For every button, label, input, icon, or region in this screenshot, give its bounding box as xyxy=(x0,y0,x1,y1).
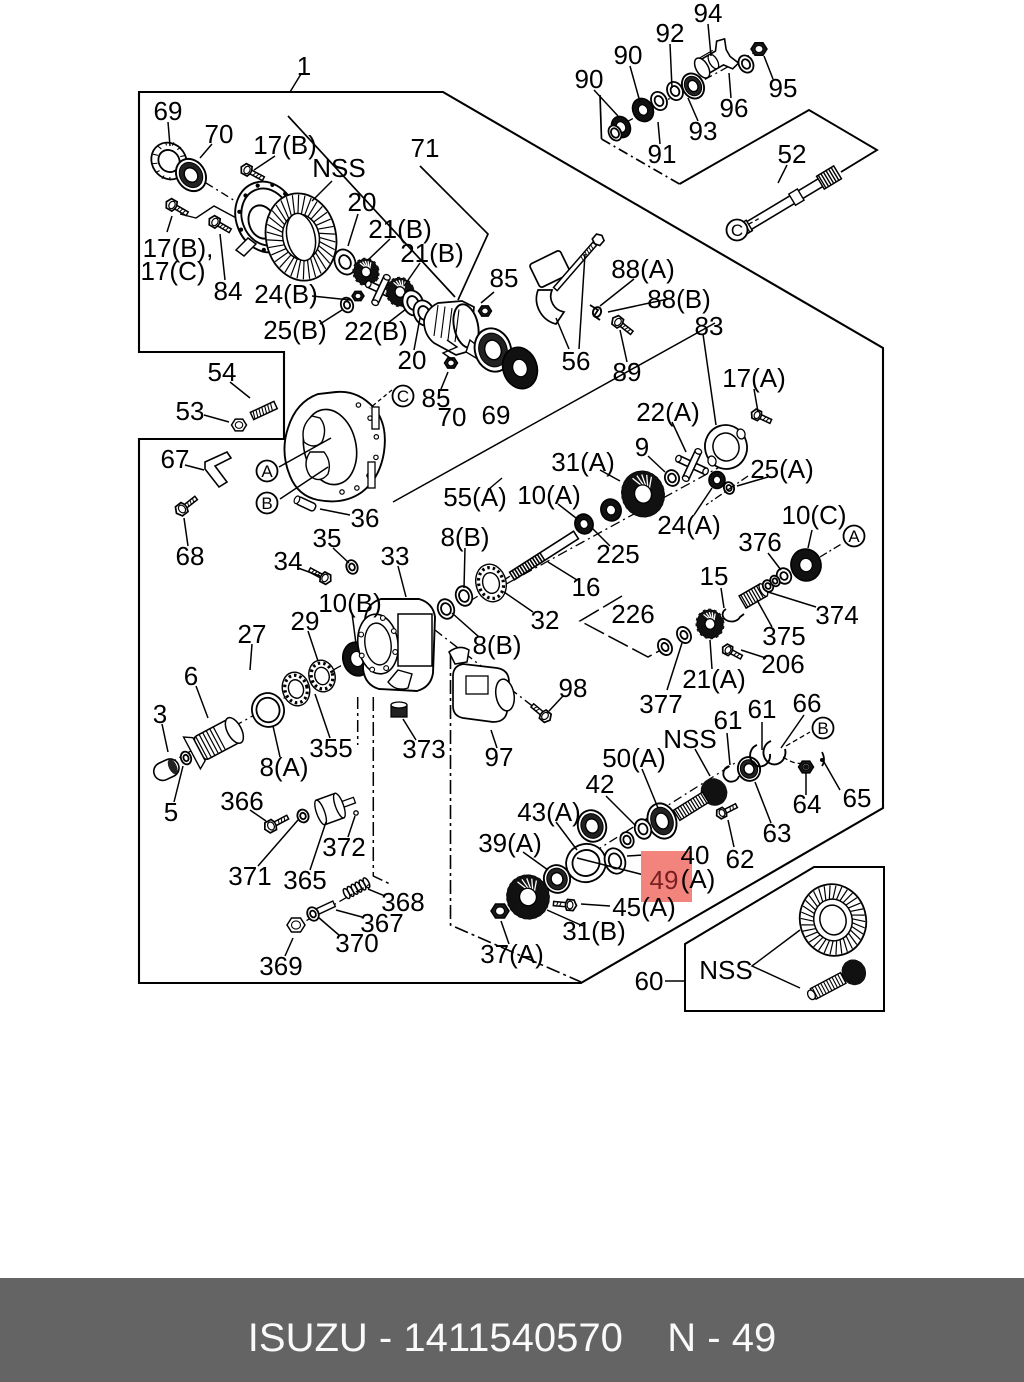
svg-text:NSS: NSS xyxy=(699,955,752,985)
svg-text:22(B): 22(B) xyxy=(344,316,408,346)
svg-text:226: 226 xyxy=(611,599,654,629)
svg-text:15: 15 xyxy=(700,561,729,591)
svg-text:56: 56 xyxy=(562,346,591,376)
svg-text:49: 49 xyxy=(650,865,679,895)
svg-text:17(A): 17(A) xyxy=(722,363,786,393)
svg-text:10(A): 10(A) xyxy=(517,480,581,510)
svg-text:69: 69 xyxy=(482,400,511,430)
svg-text:96: 96 xyxy=(720,93,749,123)
svg-text:366: 366 xyxy=(220,786,263,816)
svg-text:91: 91 xyxy=(648,139,677,169)
svg-text:25(B): 25(B) xyxy=(263,315,327,345)
svg-text:206: 206 xyxy=(761,649,804,679)
svg-text:52: 52 xyxy=(778,139,807,169)
svg-text:66: 66 xyxy=(793,688,822,718)
svg-text:B: B xyxy=(261,494,272,513)
svg-text:97: 97 xyxy=(485,742,514,772)
svg-text:61: 61 xyxy=(748,694,777,724)
svg-text:372: 372 xyxy=(322,832,365,862)
svg-text:8(B): 8(B) xyxy=(440,522,489,552)
svg-text:31(A): 31(A) xyxy=(551,447,615,477)
svg-text:NSS: NSS xyxy=(663,724,716,754)
svg-text:C: C xyxy=(731,221,743,240)
svg-text:94: 94 xyxy=(694,0,723,28)
svg-text:(A): (A) xyxy=(681,864,716,894)
svg-text:355: 355 xyxy=(309,733,352,763)
svg-text:35: 35 xyxy=(313,523,342,553)
svg-text:95: 95 xyxy=(769,73,798,103)
svg-text:71: 71 xyxy=(411,133,440,163)
svg-text:3: 3 xyxy=(153,699,167,729)
svg-text:370: 370 xyxy=(335,928,378,958)
svg-text:369: 369 xyxy=(259,951,302,981)
svg-text:85: 85 xyxy=(490,263,519,293)
svg-text:32: 32 xyxy=(531,605,560,635)
svg-text:54: 54 xyxy=(208,357,237,387)
svg-text:365: 365 xyxy=(283,865,326,895)
svg-text:8(B): 8(B) xyxy=(472,630,521,660)
svg-text:6: 6 xyxy=(184,661,198,691)
svg-text:60: 60 xyxy=(635,966,664,996)
svg-text:37(A): 37(A) xyxy=(480,939,544,969)
svg-text:ISUZU - 1411540570 N - 49: ISUZU - 1411540570 N - 49 xyxy=(248,1316,776,1360)
svg-text:A: A xyxy=(848,527,860,546)
svg-text:42: 42 xyxy=(586,769,615,799)
svg-text:1: 1 xyxy=(297,51,311,81)
svg-text:8(A): 8(A) xyxy=(259,752,308,782)
svg-text:92: 92 xyxy=(656,18,685,48)
svg-text:55(A): 55(A) xyxy=(443,482,507,512)
svg-text:10(C): 10(C) xyxy=(781,500,846,530)
svg-text:84: 84 xyxy=(214,276,243,306)
svg-text:89: 89 xyxy=(613,357,642,387)
svg-text:90: 90 xyxy=(575,64,604,94)
svg-text:70: 70 xyxy=(438,402,467,432)
svg-text:70: 70 xyxy=(205,119,234,149)
svg-text:98: 98 xyxy=(559,673,588,703)
svg-text:225: 225 xyxy=(596,539,639,569)
svg-text:63: 63 xyxy=(763,818,792,848)
svg-text:377: 377 xyxy=(639,689,682,719)
svg-text:376: 376 xyxy=(738,527,781,557)
svg-text:68: 68 xyxy=(176,541,205,571)
svg-text:83: 83 xyxy=(695,311,724,341)
svg-text:A: A xyxy=(261,462,273,481)
svg-text:B: B xyxy=(817,719,828,738)
svg-text:9: 9 xyxy=(635,432,649,462)
svg-text:53: 53 xyxy=(176,396,205,426)
svg-text:61: 61 xyxy=(714,705,743,735)
svg-text:10(B): 10(B) xyxy=(318,588,382,618)
svg-text:22(A): 22(A) xyxy=(636,397,700,427)
svg-text:21(A): 21(A) xyxy=(682,664,746,694)
svg-text:43(A): 43(A) xyxy=(517,797,581,827)
svg-text:65: 65 xyxy=(843,783,872,813)
svg-text:25(A): 25(A) xyxy=(750,454,814,484)
svg-text:20: 20 xyxy=(348,187,377,217)
svg-text:34: 34 xyxy=(274,546,303,576)
svg-text:20: 20 xyxy=(398,345,427,375)
svg-text:88(A): 88(A) xyxy=(611,254,675,284)
svg-text:27: 27 xyxy=(238,619,267,649)
svg-text:39(A): 39(A) xyxy=(478,828,542,858)
svg-text:375: 375 xyxy=(762,621,805,651)
svg-text:373: 373 xyxy=(402,734,445,764)
svg-text:NSS: NSS xyxy=(312,153,365,183)
svg-text:371: 371 xyxy=(228,861,271,891)
svg-text:17(C): 17(C) xyxy=(140,256,205,286)
svg-text:24(A): 24(A) xyxy=(657,510,721,540)
svg-text:64: 64 xyxy=(793,789,822,819)
svg-text:21(B): 21(B) xyxy=(400,238,464,268)
svg-text:17(B): 17(B) xyxy=(253,130,317,160)
svg-text:62: 62 xyxy=(726,844,755,874)
svg-text:5: 5 xyxy=(164,797,178,827)
svg-text:69: 69 xyxy=(154,96,183,126)
svg-text:31(B): 31(B) xyxy=(562,916,626,946)
svg-text:374: 374 xyxy=(815,600,858,630)
svg-text:16: 16 xyxy=(572,572,601,602)
svg-text:90: 90 xyxy=(614,40,643,70)
svg-text:36: 36 xyxy=(351,503,380,533)
svg-text:33: 33 xyxy=(381,541,410,571)
svg-text:67: 67 xyxy=(161,444,190,474)
svg-text:C: C xyxy=(397,387,409,406)
svg-text:24(B): 24(B) xyxy=(254,279,318,309)
svg-text:29: 29 xyxy=(291,606,320,636)
svg-text:93: 93 xyxy=(689,116,718,146)
svg-text:88(B): 88(B) xyxy=(647,284,711,314)
